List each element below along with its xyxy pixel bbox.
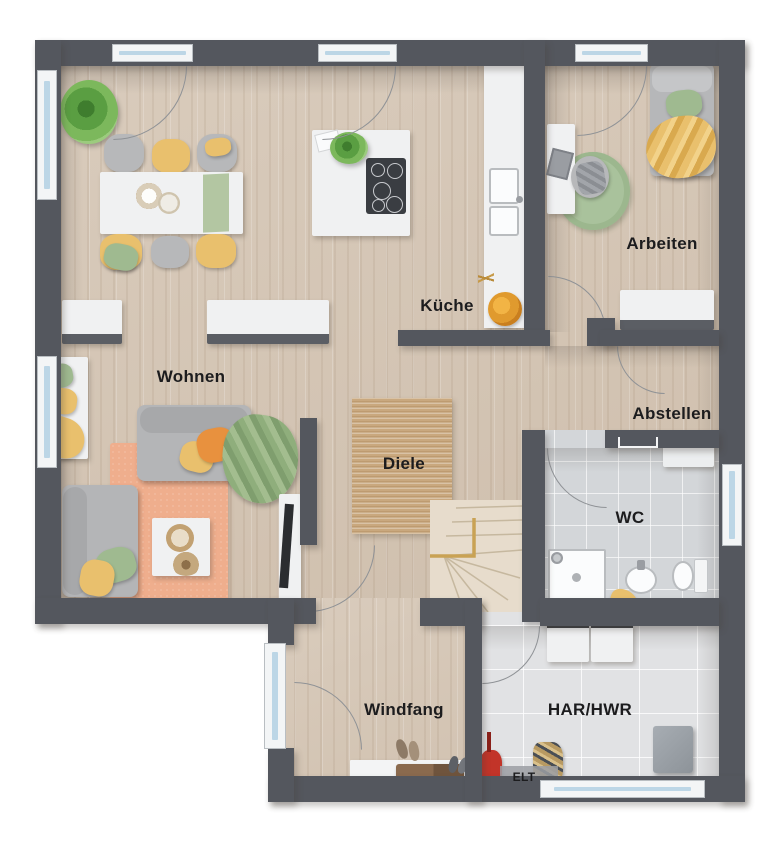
- fruit-bowl: [488, 292, 522, 326]
- chair-cushion: [574, 160, 607, 196]
- potted-plant: [60, 80, 118, 144]
- shower-head: [551, 552, 563, 564]
- vacuum-handle: [487, 732, 491, 752]
- kitchen-office-wall: [524, 40, 545, 332]
- sideboard: [620, 290, 714, 330]
- washing-machine: [547, 624, 589, 662]
- faucet: [516, 196, 523, 203]
- exterior-wall-right: [719, 40, 745, 802]
- living-hall-divider-wall: [300, 418, 317, 545]
- washing-machine: [591, 624, 633, 662]
- staircase: [430, 500, 522, 612]
- room-label-kitchen: Küche: [420, 296, 473, 316]
- kitchen-sink: [489, 168, 519, 204]
- utility-west-wall: [465, 600, 482, 802]
- toilet-bowl: [672, 561, 694, 591]
- decor-twigs: [478, 262, 494, 294]
- dining-chair: [104, 134, 144, 172]
- entry-door-leaf[interactable]: [264, 643, 286, 749]
- table-flowers: [158, 192, 180, 214]
- sideboard: [207, 300, 329, 344]
- window-utility-bottom: [540, 780, 705, 798]
- room-label-living: Wohnen: [157, 367, 226, 387]
- cooktop-burner: [372, 199, 385, 212]
- room-label-storage: Abstellen: [632, 404, 711, 424]
- dining-chair: [152, 139, 190, 173]
- towel-rail: [618, 437, 658, 448]
- kitchen-sink: [489, 206, 519, 236]
- basin-tap: [637, 560, 645, 570]
- window-dining-left: [37, 70, 57, 200]
- wc-west-wall: [522, 430, 545, 622]
- table-runner: [203, 173, 229, 232]
- room-label-elt: ELT: [513, 770, 536, 784]
- washbasin: [625, 566, 657, 594]
- dining-chair: [151, 236, 189, 268]
- floor-plan: Wohnen Küche Arbeiten Abstellen Diele WC…: [0, 0, 775, 849]
- window-dining-top: [112, 44, 193, 62]
- sideboard: [62, 300, 122, 344]
- bed-pillow: [652, 66, 712, 92]
- laundry-basket: [653, 726, 693, 773]
- room-label-vestibule: Windfang: [364, 700, 444, 720]
- toilet-cistern: [694, 559, 708, 593]
- dried-plant: [170, 548, 202, 576]
- dining-chair: [196, 234, 236, 268]
- window-wc-right: [722, 464, 742, 546]
- window-kitchen-top: [318, 44, 397, 62]
- wc-south-wall: [540, 598, 719, 626]
- cooktop-burner: [386, 196, 403, 213]
- vestibule-west-wall-lower: [268, 748, 294, 802]
- cooktop-burner: [371, 163, 385, 177]
- cooktop-burner: [387, 163, 403, 179]
- kitchen-south-wall: [398, 330, 550, 346]
- room-label-utility: HAR/HWR: [548, 700, 632, 720]
- shower-drain: [572, 573, 581, 582]
- office-south-wall: [600, 330, 719, 346]
- room-label-hall: Diele: [383, 454, 425, 474]
- window-living-left: [37, 356, 57, 468]
- vestibule-west-wall-upper: [268, 598, 294, 645]
- room-label-office: Arbeiten: [626, 234, 697, 254]
- window-office-top: [575, 44, 648, 62]
- room-label-wc: WC: [616, 508, 645, 528]
